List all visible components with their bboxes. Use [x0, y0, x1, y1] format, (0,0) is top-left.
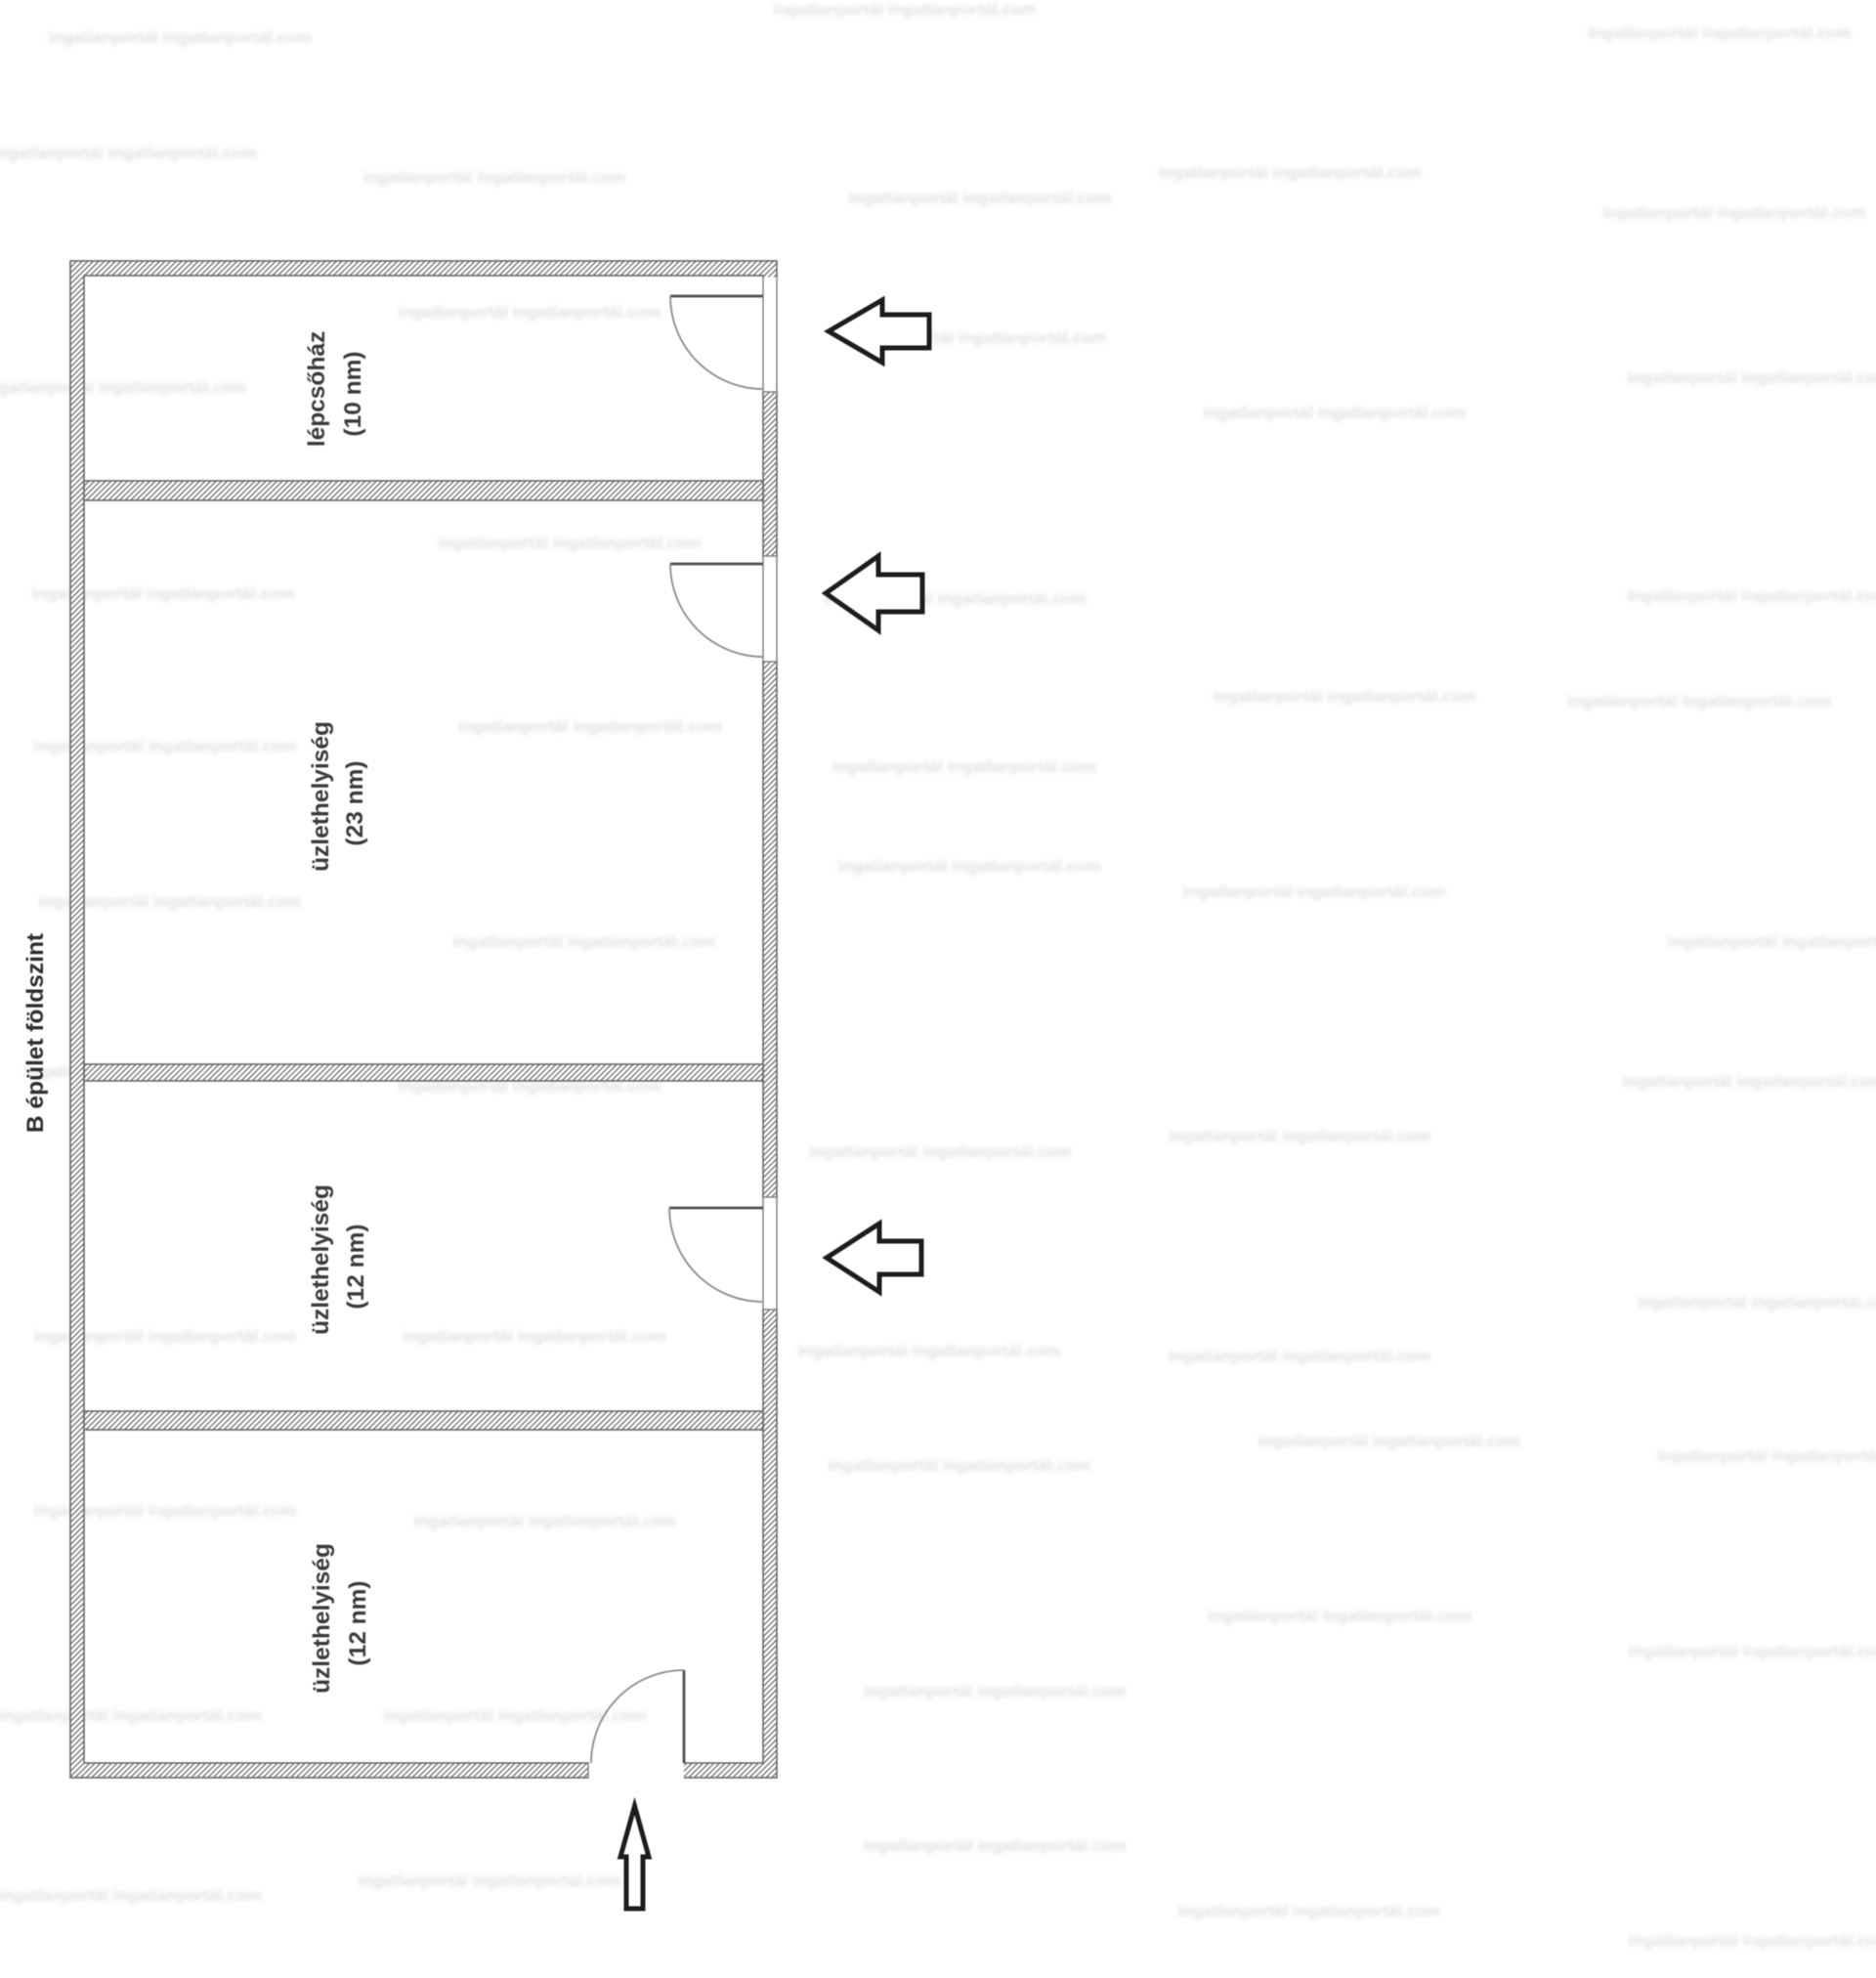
svg-text:üzlethelyiség: üzlethelyiség [309, 1543, 335, 1694]
svg-text:B épület földszint: B épület földszint [22, 933, 49, 1133]
svg-text:(10 nm): (10 nm) [340, 351, 366, 436]
svg-text:üzlethelyiség: üzlethelyiség [308, 1184, 334, 1335]
svg-text:lépcsőház: lépcsőház [304, 331, 330, 447]
svg-text:(12 nm): (12 nm) [345, 1580, 371, 1665]
svg-text:(12 nm): (12 nm) [343, 1224, 369, 1309]
svg-text:(23 nm): (23 nm) [342, 760, 368, 845]
svg-text:üzlethelyiség: üzlethelyiség [308, 721, 334, 872]
